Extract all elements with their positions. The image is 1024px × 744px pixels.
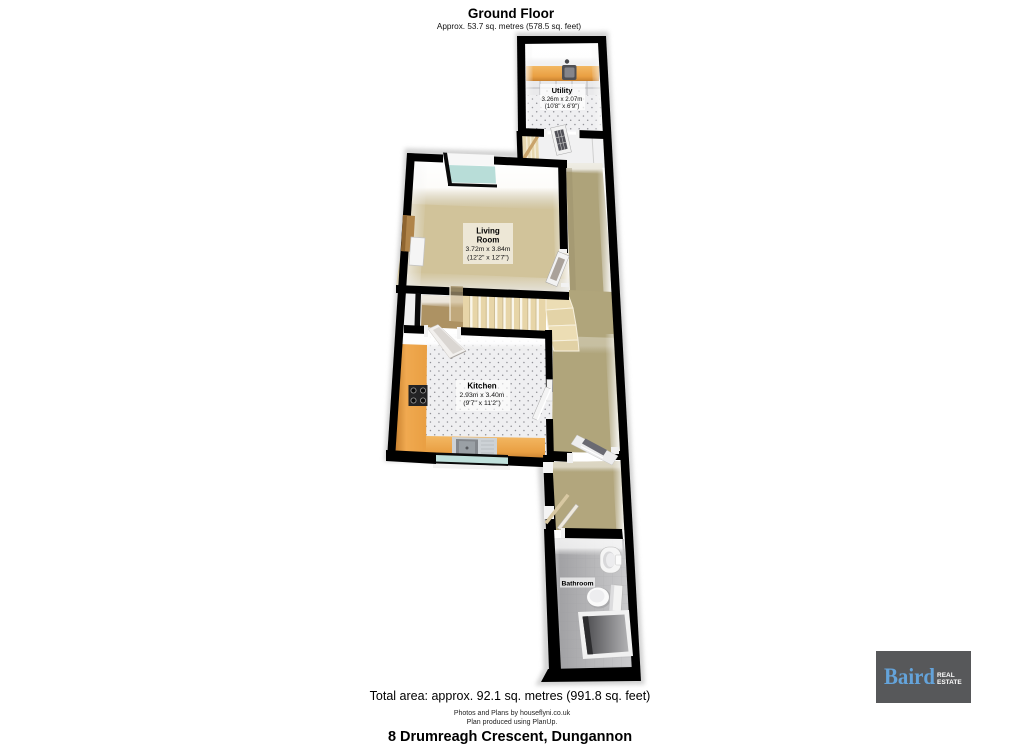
svg-text:2.93m x 3.40m: 2.93m x 3.40m xyxy=(460,392,505,399)
svg-text:Ground Floor: Ground Floor xyxy=(468,6,555,21)
svg-text:(10'8" x 6'9"): (10'8" x 6'9") xyxy=(545,103,580,110)
svg-text:8 Drumreagh Crescent, Dunganno: 8 Drumreagh Crescent, Dungannon xyxy=(388,729,632,744)
svg-text:3.72m x 3.84m: 3.72m x 3.84m xyxy=(466,246,511,253)
svg-text:Total area: approx. 92.1 sq. m: Total area: approx. 92.1 sq. metres (991… xyxy=(370,689,651,703)
svg-text:Approx. 53.7 sq. metres (578.5: Approx. 53.7 sq. metres (578.5 sq. feet) xyxy=(437,22,582,31)
svg-text:Living: Living xyxy=(476,227,500,236)
svg-text:(12'2" x 12'7"): (12'2" x 12'7") xyxy=(467,255,509,262)
svg-text:(9'7" x 11'2"): (9'7" x 11'2") xyxy=(463,400,501,407)
svg-text:ESTATE: ESTATE xyxy=(937,679,962,686)
svg-text:Plan produced using PlanUp.: Plan produced using PlanUp. xyxy=(467,719,558,726)
svg-text:Kitchen: Kitchen xyxy=(467,382,496,391)
svg-text:Baird: Baird xyxy=(884,664,935,689)
svg-text:Room: Room xyxy=(477,236,500,245)
svg-text:Utility: Utility xyxy=(552,86,574,95)
svg-text:3.26m x 2.07m: 3.26m x 2.07m xyxy=(542,96,583,103)
svg-text:Photos and Plans by houseflyni: Photos and Plans by houseflyni.co.uk xyxy=(454,710,571,717)
svg-text:REAL: REAL xyxy=(937,672,955,679)
svg-text:Bathroom: Bathroom xyxy=(561,581,593,588)
